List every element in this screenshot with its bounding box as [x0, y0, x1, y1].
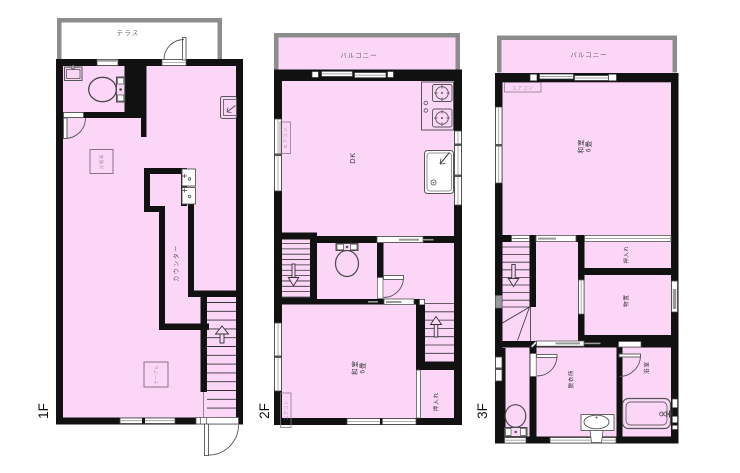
- svg-text:テラス: テラス: [117, 29, 140, 37]
- svg-text:カウンター: カウンター: [173, 244, 181, 282]
- svg-text:3F: 3F: [475, 403, 490, 419]
- svg-text:DK: DK: [348, 152, 357, 163]
- svg-text:テーブル: テーブル: [153, 365, 160, 385]
- svg-text:2F: 2F: [257, 403, 272, 419]
- svg-text:脱衣所: 脱衣所: [567, 370, 575, 389]
- svg-text:押入れ: 押入れ: [622, 246, 630, 264]
- svg-text:エアコン: エアコン: [512, 86, 533, 92]
- svg-text:和室: 和室: [576, 139, 585, 154]
- svg-text:6畳: 6畳: [585, 140, 593, 152]
- svg-text:和室: 和室: [350, 360, 359, 375]
- svg-text:6畳: 6畳: [359, 361, 367, 373]
- svg-text:バルコニー: バルコニー: [340, 52, 377, 60]
- svg-text:1F: 1F: [36, 403, 51, 419]
- svg-text:押入れ: 押入れ: [432, 392, 440, 412]
- svg-text:バルコニー: バルコニー: [570, 51, 607, 59]
- svg-text:浴室: 浴室: [643, 361, 651, 374]
- svg-text:冷蔵庫: 冷蔵庫: [98, 154, 105, 170]
- svg-text:物置: 物置: [622, 294, 630, 307]
